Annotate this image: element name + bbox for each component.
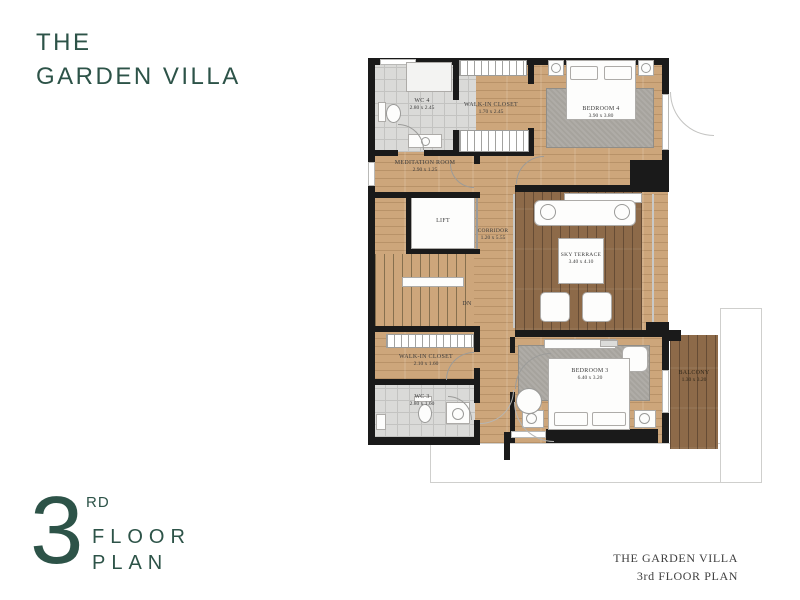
wall-closet3-right-a	[474, 332, 480, 352]
wall-bed3-left-a	[510, 337, 515, 353]
wall-stairs-bottom	[368, 326, 480, 332]
pillow-icon	[570, 66, 598, 80]
chair-icon	[540, 292, 570, 322]
staircase	[375, 254, 474, 326]
brand-line2: GARDEN VILLA	[36, 60, 241, 94]
wall-closet-bed4-a	[528, 58, 534, 84]
footer-caption: THE GARDEN VILLA 3rd FLOOR PLAN	[613, 549, 738, 585]
wall-bed3-bottom	[546, 429, 658, 443]
wall-wc3-bottom	[368, 437, 480, 445]
wall-balcony-stub	[668, 330, 681, 341]
door-arc-bed4-exterior	[670, 92, 714, 136]
plant-icon	[639, 413, 650, 424]
wardrobe-closet4-top	[459, 60, 527, 76]
wall-lift-bottom	[406, 249, 480, 254]
stair-handrail	[402, 277, 464, 287]
shower-wc4	[406, 62, 452, 92]
footer-line2: 3rd FLOOR PLAN	[613, 567, 738, 585]
cushion-icon	[540, 204, 556, 220]
cabinet-wc3	[376, 414, 386, 430]
roof-terrace-outline	[430, 443, 762, 483]
room-label-closet4: WALK-IN CLOSET 1.70 x 2.45	[456, 102, 526, 116]
window-meditation	[368, 162, 375, 186]
wall-left	[368, 58, 375, 445]
wall-bed3-right-b	[662, 413, 669, 443]
terrace-glass-left	[513, 194, 515, 328]
stairs-dn-label: DN	[456, 301, 478, 308]
pillow-icon	[604, 66, 632, 80]
floor-ordinal: RD	[86, 494, 110, 511]
wardrobe-closet4-bottom	[459, 130, 529, 152]
room-label-bedroom3: BEDROOM 3 6.40 x 3.20	[554, 368, 626, 382]
room-label-lift: LIFT	[411, 218, 475, 225]
room-label-wc3: WC 3 2.80 x 1.60	[378, 394, 466, 408]
room-label-meditation: MEDITATION ROOM 2.90 x 1.25	[375, 160, 475, 174]
lift-doors	[476, 198, 478, 250]
floor-badge: 3 RD FLOOR PLAN	[30, 488, 83, 574]
wardrobe-closet3	[386, 334, 474, 348]
brand-title: THE GARDEN VILLA	[36, 26, 241, 94]
floor-plan: WC 4 2.80 x 2.45 WALK-IN CLOSET 1.70 x 2…	[368, 58, 764, 484]
chair-icon	[582, 292, 612, 322]
floor-word2: PLAN	[92, 550, 191, 576]
pillow-icon	[592, 412, 626, 426]
plant-icon	[551, 63, 561, 73]
floor-word1: FLOOR	[92, 524, 191, 550]
wall-entry-stub	[504, 432, 510, 460]
terrace-glass-right	[652, 194, 654, 328]
balcony-deck	[670, 335, 718, 449]
wall-wc4-bottom-a	[368, 150, 398, 156]
tv-icon	[600, 340, 618, 347]
door-bed3-balcony	[662, 370, 669, 413]
cushion-icon	[614, 204, 630, 220]
floor-number: 3	[30, 477, 83, 584]
door-bed4-exterior	[662, 94, 669, 150]
wall-meditation-bottom	[368, 192, 480, 198]
room-label-wc4: WC 4 2.80 x 2.45	[380, 98, 464, 112]
room-label-corridor: CORRIDOR 1.20 x 5.55	[471, 228, 515, 242]
floor-words: FLOOR PLAN	[92, 524, 191, 576]
room-label-balcony: BALCONY 1.30 x 3.20	[670, 370, 718, 384]
room-label-terrace: SKY TERRACE 3.40 x 4.10	[558, 252, 604, 266]
plant-icon	[641, 63, 651, 73]
brand-line1: THE	[36, 26, 241, 60]
pillow-icon	[554, 412, 588, 426]
roof-terrace-outline-right	[720, 308, 762, 483]
room-label-bedroom4: BEDROOM 4 3.90 x 3.80	[566, 106, 636, 120]
room-label-closet3: WALK-IN CLOSET 2.10 x 1.60	[378, 354, 474, 368]
footer-line1: THE GARDEN VILLA	[613, 549, 738, 567]
